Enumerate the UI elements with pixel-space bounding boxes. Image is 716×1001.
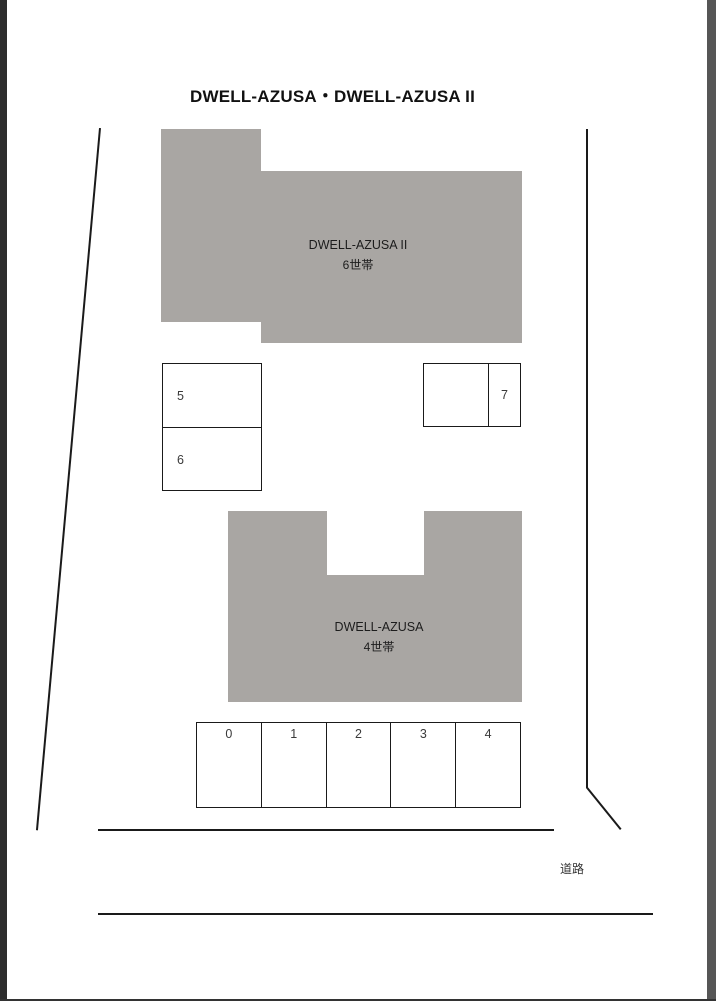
road-label: 道路: [548, 860, 596, 877]
building-azusa-notch: [327, 511, 424, 575]
building-azusa2-footprint-left: [161, 129, 261, 322]
page-title: DWELL-AZUSA・DWELL-AZUSA II: [190, 82, 475, 107]
parking-space-6: 6: [163, 428, 261, 491]
parking-space-7: 7: [488, 364, 520, 426]
boundary-line-bottom: [98, 829, 554, 831]
parking-space-number: 5: [177, 389, 184, 403]
parking-space-4: 4: [456, 723, 520, 807]
parking-space-5: 5: [163, 364, 261, 428]
parking-space-3: 3: [391, 723, 456, 807]
building-azusa2-label: DWELL-AZUSA II 6世帯: [258, 238, 458, 272]
building-azusa-units: 4世帯: [279, 640, 479, 654]
building-azusa-label: DWELL-AZUSA 4世帯: [279, 620, 479, 654]
parking-space-2: 2: [327, 723, 392, 807]
right-frame-bar: [707, 0, 716, 1001]
building-azusa-name: DWELL-AZUSA: [279, 620, 479, 634]
parking-space-0: 0: [197, 723, 262, 807]
site-plan-page: DWELL-AZUSA・DWELL-AZUSA II DWELL-AZUSA I…: [0, 0, 716, 1001]
boundary-line-left: [36, 128, 101, 830]
parking-row-bottom: 0 1 2 3 4: [196, 722, 521, 808]
parking-block-left: 5 6: [162, 363, 262, 491]
building-azusa2-units: 6世帯: [258, 258, 458, 272]
parking-block-right: 7: [423, 363, 521, 427]
parking-space-number: 6: [177, 453, 184, 467]
parking-space-1: 1: [262, 723, 327, 807]
left-frame-bar: [0, 0, 7, 1001]
boundary-corner-chamfer: [586, 787, 622, 830]
parking-space-unmarked: [424, 364, 488, 426]
building-azusa2-name: DWELL-AZUSA II: [258, 238, 458, 252]
road-edge-line: [98, 913, 653, 915]
boundary-line-right: [586, 129, 588, 788]
